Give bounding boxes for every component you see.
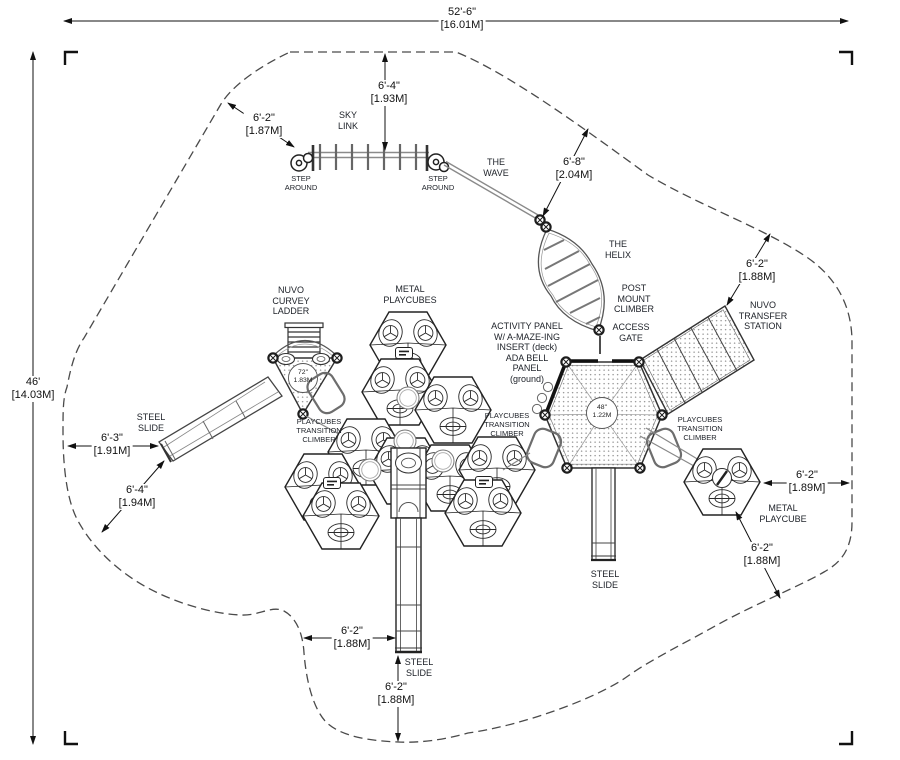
label-hex-deck-size: 48" 1.22M bbox=[593, 404, 612, 421]
nuvo-transfer-station-ramp bbox=[640, 306, 754, 414]
triangle-post bbox=[332, 353, 341, 362]
dim-wave-clearance: 6'-8" [2.04M] bbox=[554, 156, 595, 182]
sky-link bbox=[308, 144, 429, 171]
steel-slide-right-chute bbox=[591, 468, 616, 560]
site-plan-linework bbox=[0, 0, 900, 760]
label-triangle-deck-size: 72" 1.83M bbox=[294, 369, 313, 386]
post-mount-climber-post bbox=[594, 325, 603, 334]
label-nuvo-transfer-station: NUVO TRANSFER STATION bbox=[739, 300, 788, 332]
steel-slide-bottom-chute bbox=[391, 448, 426, 652]
dim-slide-bottom-exit: 6'-2" [1.88M] bbox=[376, 681, 417, 707]
label-the-helix: THE HELIX bbox=[605, 239, 631, 260]
steel-slide-left-chute bbox=[159, 377, 282, 462]
dim-slide-left-lower-clearance: 6'-4" [1.94M] bbox=[117, 484, 158, 510]
label-steel-slide-right: STEEL SLIDE bbox=[591, 569, 620, 590]
label-post-mount-climber: POST MOUNT CLIMBER bbox=[614, 283, 654, 315]
ladder bbox=[285, 323, 323, 355]
dim-slide-bottom-side: 6'-2" [1.88M] bbox=[332, 625, 373, 651]
overall-width-dimension-label: 52'-6" [16.01M] bbox=[439, 6, 486, 32]
dim-playcube-right-clearance: 6'-2" [1.89M] bbox=[787, 469, 828, 495]
label-ptc-right: PLAYCUBES TRANSITION CLIMBER bbox=[677, 416, 722, 443]
metal-playcube-single bbox=[684, 449, 760, 515]
dim-transfer-clearance: 6'-2" [1.88M] bbox=[737, 258, 778, 284]
the-helix bbox=[538, 229, 604, 331]
dim-playcube-lower-clearance: 6'-2" [1.88M] bbox=[742, 542, 783, 568]
label-ptc-mid: PLAYCUBES TRANSITION CLIMBER bbox=[484, 412, 529, 439]
label-steel-slide-left: STEEL SLIDE bbox=[137, 412, 166, 433]
label-metal-playcube: METAL PLAYCUBE bbox=[759, 503, 806, 524]
helix-top-post bbox=[541, 222, 550, 231]
label-the-wave: THE WAVE bbox=[483, 157, 509, 178]
label-ptc-left: PLAYCUBES TRANSITION CLIMBER bbox=[296, 418, 341, 445]
plan-drawing-canvas: 52'-6" [16.01M] 46' [14.03M] 6'-2" [1.87… bbox=[0, 0, 900, 760]
label-nuvo-curvey-ladder: NUVO CURVEY LADDER bbox=[272, 285, 309, 317]
overall-depth-dimension-label: 46' [14.03M] bbox=[10, 376, 57, 402]
triangle-post bbox=[268, 353, 277, 362]
label-activity-panel: ACTIVITY PANEL W/ A-MAZE-ING INSERT (dec… bbox=[491, 321, 563, 385]
step-around-right bbox=[428, 154, 449, 172]
label-step-around-right: STEP AROUND bbox=[422, 175, 455, 193]
dim-slide-left-clearance: 6'-3" [1.91M] bbox=[92, 432, 133, 458]
label-step-around-left: STEP AROUND bbox=[285, 175, 318, 193]
label-sky-link: SKY LINK bbox=[338, 110, 358, 131]
step-around-left bbox=[291, 154, 313, 172]
dim-sky-link-clearance: 6'-2" [1.87M] bbox=[244, 112, 285, 138]
dim-sky-link-to-border: 6'-4" [1.93M] bbox=[369, 80, 410, 106]
label-access-gate: ACCESS GATE bbox=[612, 322, 649, 343]
label-steel-slide-bottom: STEEL SLIDE bbox=[405, 657, 434, 678]
label-metal-playcubes: METAL PLAYCUBES bbox=[383, 284, 436, 305]
